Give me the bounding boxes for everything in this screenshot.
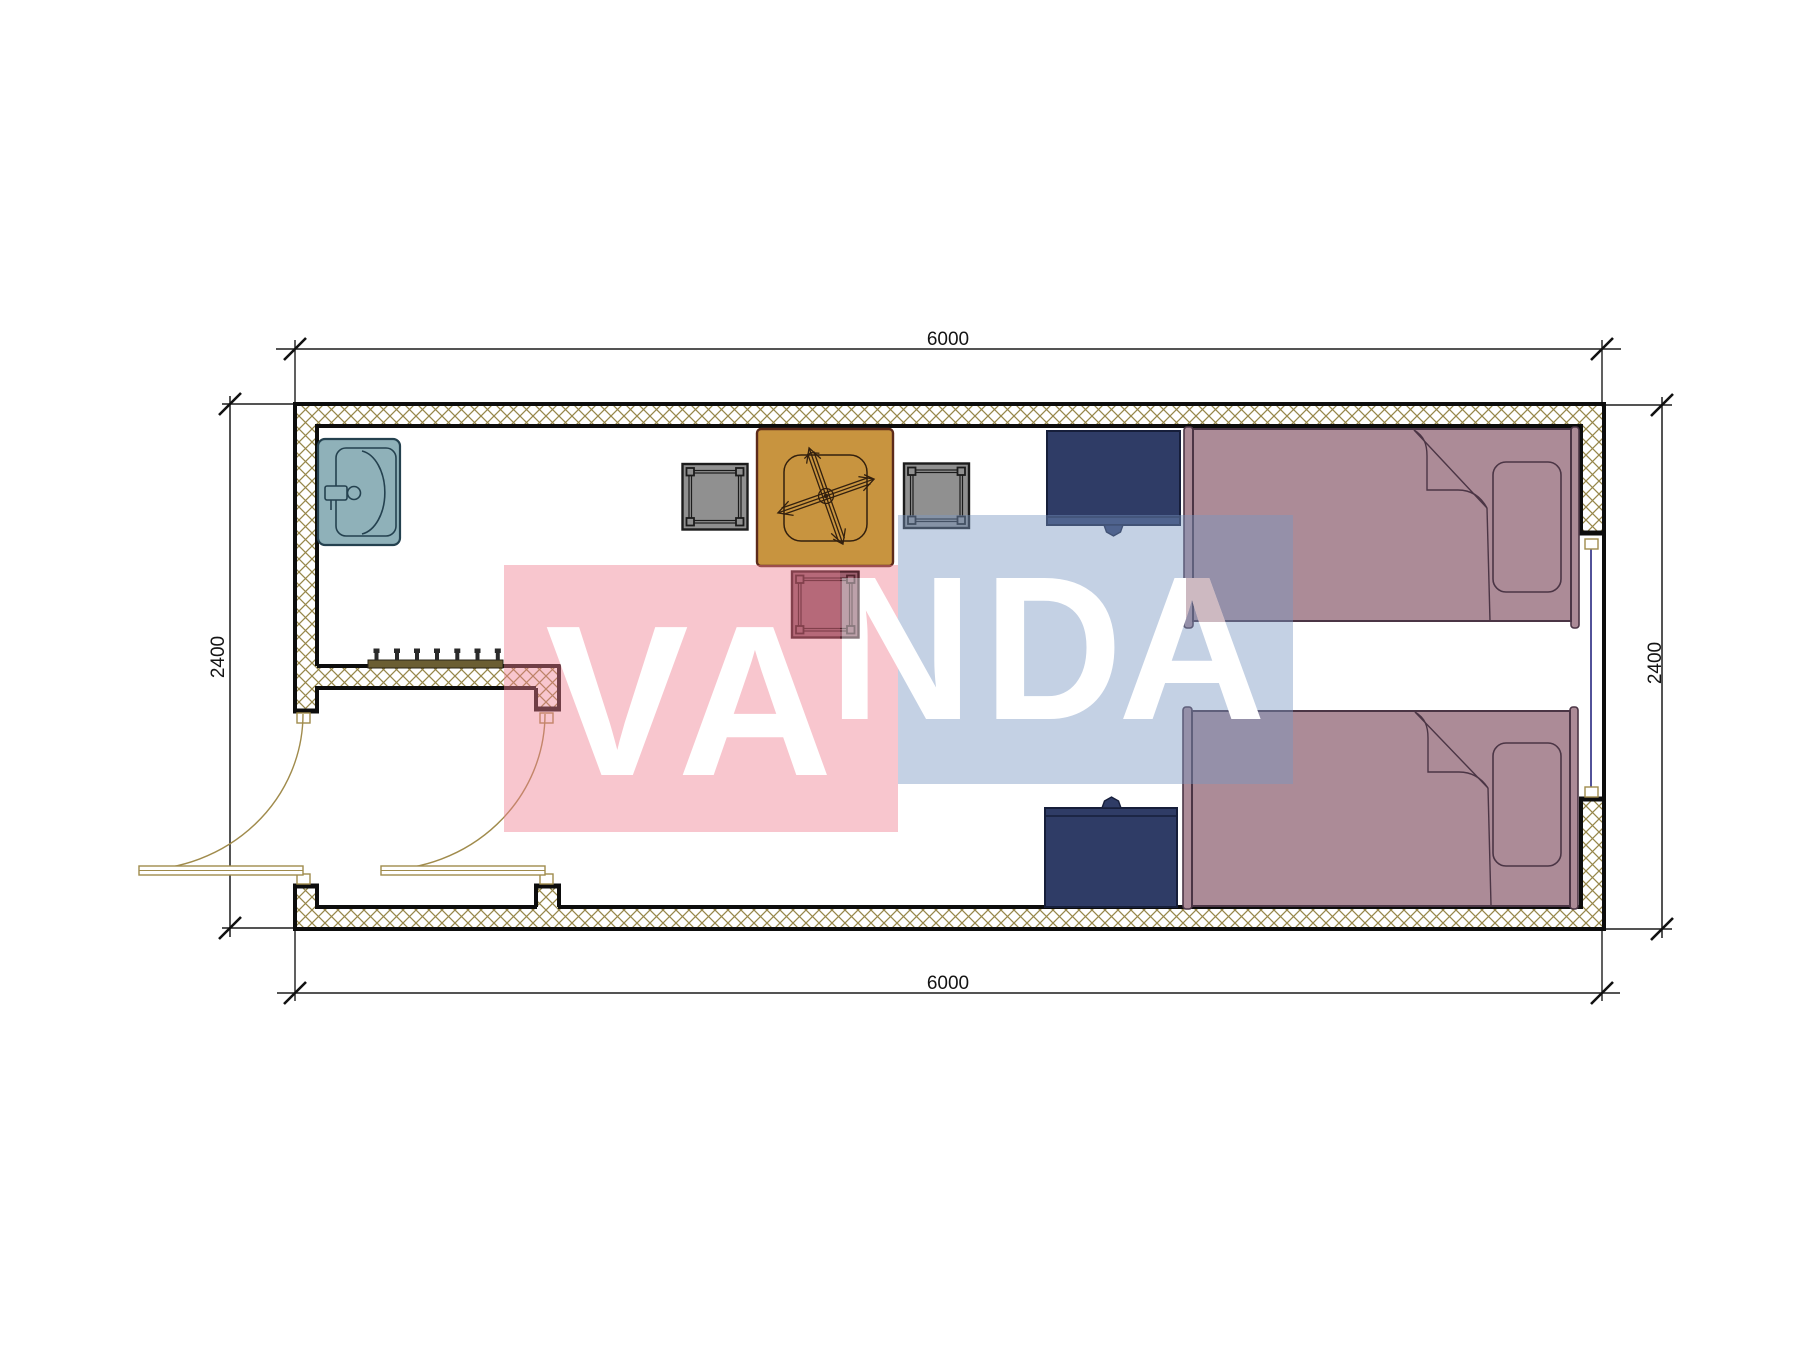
svg-text:6000: 6000 bbox=[927, 973, 969, 994]
svg-text:N: N bbox=[829, 534, 974, 763]
svg-text:2400: 2400 bbox=[208, 636, 229, 678]
svg-text:2400: 2400 bbox=[1645, 642, 1666, 684]
svg-text:V: V bbox=[545, 580, 688, 821]
svg-text:D: D bbox=[984, 534, 1123, 763]
svg-text:6000: 6000 bbox=[927, 329, 969, 350]
svg-text:A: A bbox=[677, 580, 832, 821]
